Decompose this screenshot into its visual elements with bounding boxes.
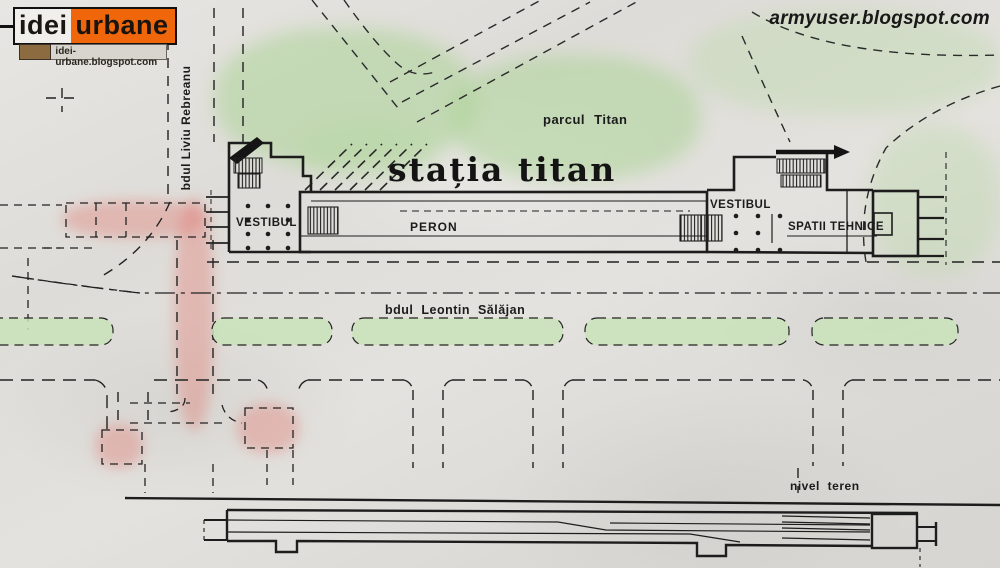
section-right-end	[872, 514, 936, 567]
section-inner-lines	[227, 516, 870, 542]
section-bottom	[227, 541, 872, 556]
stairs-icon	[234, 158, 262, 188]
boulevard-label: bdul Leontin Sălăjan	[385, 303, 525, 317]
platform-hall	[300, 192, 722, 252]
station-title: stația titan	[388, 150, 616, 189]
right-vestibule-label: VESTIBUL	[710, 199, 771, 211]
technical-spaces-label: SPATII TEHNICE	[788, 221, 884, 233]
logo-text-urbane: urbane	[71, 9, 175, 43]
scanned-station-plan: stația titan parcul Titan bdul Liviu Reb…	[0, 0, 1000, 568]
ground-line	[125, 498, 1000, 505]
stairs-icon	[308, 207, 338, 234]
logo-url-text: idei-urbane.blogspot.com	[51, 44, 166, 60]
logo-brown-swatch	[19, 44, 51, 60]
logo-text-idei: idei	[15, 9, 71, 43]
column-dots	[734, 214, 783, 253]
street-rebreanu-label: bdul Liviu Rebreanu	[179, 66, 193, 191]
stairs-icon	[777, 159, 825, 187]
exit-arrow-head-icon	[834, 145, 850, 159]
right-track-ticks	[918, 197, 944, 256]
section-drawing	[125, 498, 1000, 567]
boulevard	[0, 262, 1000, 430]
logo-subtitle-row: idei-urbane.blogspot.com	[19, 44, 167, 60]
south-streets	[118, 380, 852, 493]
left-vestibule-label: VESTIBUL	[236, 217, 297, 229]
logo-wordmark: idei urbane	[13, 7, 177, 45]
median-strips	[0, 318, 958, 345]
left-track-ticks	[206, 190, 229, 252]
platform-label: PERON	[410, 220, 458, 234]
watermark-url: armyuser.blogspot.com	[769, 8, 990, 30]
ground-level-label: nivel teren	[790, 479, 860, 493]
park-label: parcul Titan	[543, 112, 627, 127]
section-left-access	[204, 520, 227, 540]
logo-tick	[0, 25, 14, 28]
